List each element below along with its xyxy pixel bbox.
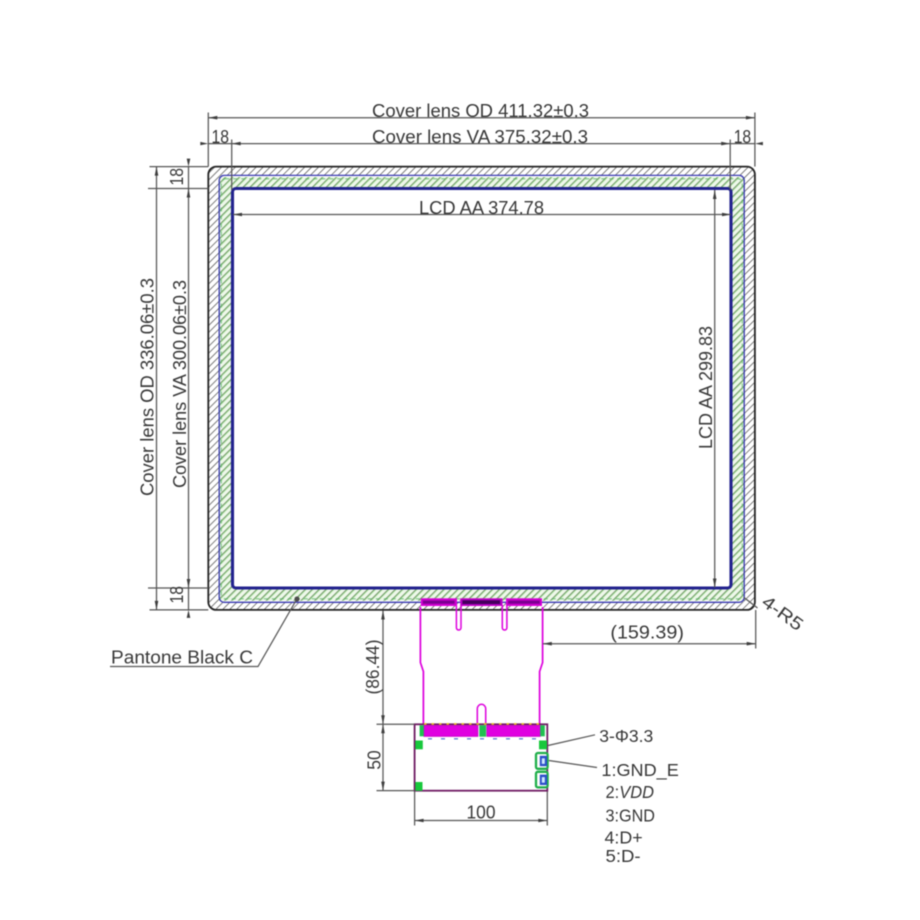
svg-text:18: 18 [167,168,187,186]
svg-text:LCD AA 374.78: LCD AA 374.78 [419,197,544,218]
svg-text:Cover lens VA 375.32±0.3: Cover lens VA 375.32±0.3 [372,126,588,147]
svg-text:Pantone Black C: Pantone Black C [111,647,253,668]
svg-text:4:D+: 4:D+ [605,827,643,847]
svg-text:5:D-: 5:D- [606,846,641,866]
svg-text:50: 50 [365,750,385,770]
svg-text:LCD AA 299.83: LCD AA 299.83 [695,326,716,449]
svg-text:18: 18 [734,127,752,147]
svg-text:100: 100 [467,801,496,822]
svg-text:(86.44): (86.44) [363,640,383,695]
svg-text:18: 18 [167,586,187,604]
svg-text:Cover lens OD 411.32±0.3: Cover lens OD 411.32±0.3 [372,100,589,121]
svg-text:1:GND_E: 1:GND_E [601,760,678,781]
svg-text:3:GND: 3:GND [606,805,656,825]
svg-text:Cover lens OD 336.06±0.3: Cover lens OD 336.06±0.3 [137,278,158,496]
svg-text:3-Φ3.3: 3-Φ3.3 [599,726,653,746]
svg-text:18: 18 [212,127,230,147]
svg-text:(159.39): (159.39) [610,622,684,643]
svg-text:Cover lens VA 300.06±0.3: Cover lens VA 300.06±0.3 [169,280,190,488]
svg-text:2:VDD: 2:VDD [606,782,655,802]
